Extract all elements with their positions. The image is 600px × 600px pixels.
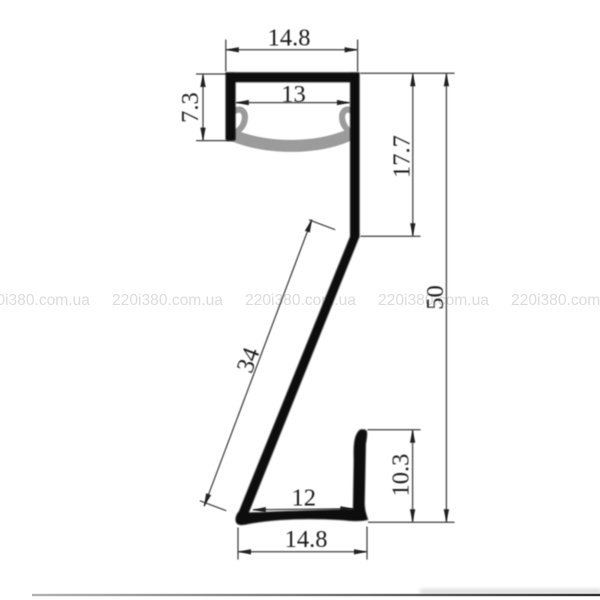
- svg-text:220i380.com.ua: 220i380.com.ua: [112, 292, 223, 309]
- svg-text:220i380.com.ua: 220i380.com.ua: [0, 292, 90, 309]
- svg-text:10.3: 10.3: [388, 454, 415, 497]
- svg-text:17.7: 17.7: [389, 135, 416, 178]
- svg-text:7.3: 7.3: [177, 92, 204, 123]
- svg-text:50: 50: [422, 285, 449, 310]
- svg-text:220i380.com.ua: 220i380.com.ua: [245, 292, 356, 309]
- svg-text:12: 12: [291, 485, 316, 512]
- svg-text:220i380.com.ua: 220i380.com.ua: [511, 292, 600, 309]
- svg-text:14.8: 14.8: [285, 526, 328, 553]
- svg-text:14.8: 14.8: [268, 25, 311, 52]
- svg-text:13: 13: [281, 81, 306, 108]
